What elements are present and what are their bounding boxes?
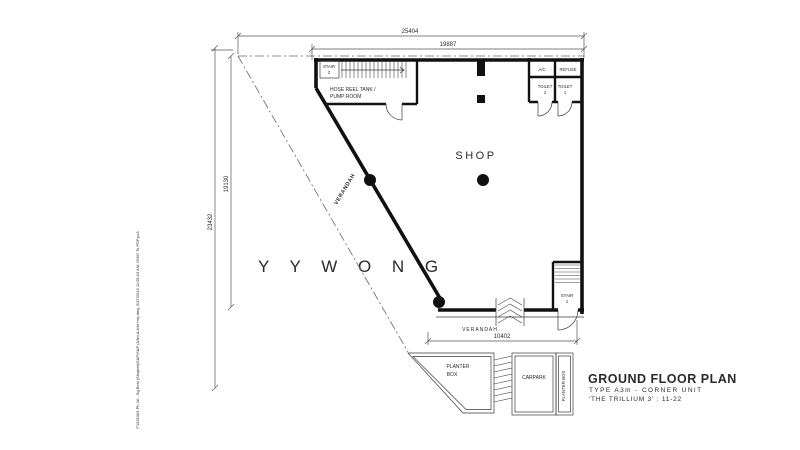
stair-2: STAIR 2 [320, 61, 406, 78]
toilet-1-label: TOILET [558, 84, 573, 89]
rear-wall-pier [477, 60, 485, 76]
column-dot [364, 174, 376, 186]
rear-column [477, 95, 485, 103]
verandah-bottom-label: VERANDAH [462, 327, 498, 333]
entrance-steps [496, 298, 524, 326]
stair-1: STAIR 1 [553, 262, 582, 330]
column-dot [433, 296, 445, 308]
drawing-project-line: 'THE TRILLIUM 3' : 11-22 [589, 396, 682, 403]
stair-1-label: STAIR [561, 293, 574, 298]
drawing-type-line: TYPE A3m - CORNER UNIT [589, 387, 703, 394]
lot-boundary-lines [238, 56, 584, 352]
carpark-label: CARPARK [522, 375, 546, 381]
planter-left-label-1: PLANTER [446, 364, 469, 370]
pump-room-label-2: PUMP ROOM [330, 94, 361, 100]
carpark-band: PLANTER BOX CARPARK PLANTER BOX [408, 353, 573, 415]
dim-top-inner: 19887 [440, 42, 457, 48]
dim-top-outer: 25404 [402, 29, 419, 35]
toilet-1-number: 1 [564, 90, 567, 95]
shop-label: SHOP [455, 150, 496, 162]
planter-right-label: PLANTER BOX [561, 371, 566, 402]
verandah-side-label: VERANDAH [334, 173, 357, 206]
toilet-block: A/C REFUSE TOILET 2 TOILET 1 [529, 58, 582, 116]
stair-1-number: 1 [566, 299, 569, 304]
dim-left-outer: 23432 [208, 213, 214, 230]
toilet-2-number: 2 [544, 90, 547, 95]
planter-left-label-2: BOX [447, 372, 458, 378]
carpark: CARPARK [512, 353, 556, 415]
drawing-title: GROUND FLOOR PLAN [588, 372, 737, 386]
stair-2-label: STAIR [323, 64, 335, 69]
floor-plan-drawing: Y Y W O N G F1031003 Ph 2A - Sg Besi (Sh… [0, 0, 800, 450]
title-block: GROUND FLOOR PLAN TYPE A3m - CORNER UNIT… [588, 372, 737, 403]
refuse-label: REFUSE [560, 67, 577, 72]
dim-bottom: 10402 [494, 334, 511, 340]
planter-box-left: PLANTER BOX [408, 353, 494, 413]
stair-2-number: 2 [328, 70, 331, 75]
carpark-steps [494, 356, 512, 402]
columns [364, 174, 489, 308]
column-dot [477, 174, 489, 186]
pump-room: STAIR 2 HOSE REEL TANK / PUMP ROOM [320, 60, 417, 120]
dim-left-inner: 19130 [224, 175, 230, 192]
planter-box-right: PLANTER BOX [556, 353, 573, 415]
pump-room-label-1: HOSE REEL TANK / [330, 87, 376, 93]
ac-ledge-label: A/C [538, 67, 545, 72]
floor-plan-sheet: Y Y W O N G F1031003 Ph 2A - Sg Besi (Sh… [0, 0, 800, 450]
plot-stamp-text: F1031003 Ph 2A - Sg Besi (Shoplot)\S&P\S… [135, 231, 140, 429]
toilet-2-label: TOILET [538, 84, 553, 89]
